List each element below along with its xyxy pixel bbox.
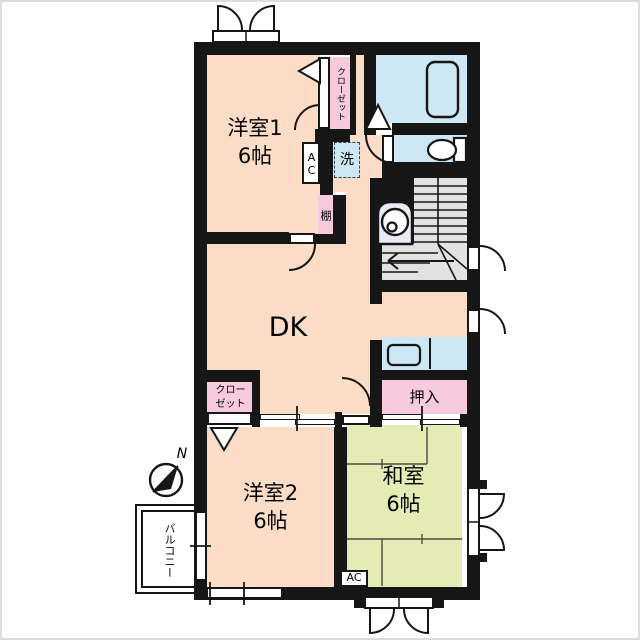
room-label-western2: 洋室2 6帖 (207, 479, 334, 536)
wall-segment (207, 232, 289, 244)
window-frame-south (364, 596, 434, 609)
wall-segment (334, 427, 347, 587)
ac-label-western1: AC (302, 146, 320, 182)
laundry-label: 洗 (334, 142, 360, 178)
wall-segment (333, 195, 346, 244)
floor-plan: 洋室1 6帖 DK 洋室2 6帖 和室 6帖 クローゼット 棚 洗 AC クロー… (0, 0, 640, 640)
room-label-japanese: 和室 6帖 (347, 462, 460, 519)
toilet-floor (394, 135, 467, 162)
kitchen-counter (382, 337, 467, 370)
entrance-door-panel-1 (467, 246, 480, 271)
window-western2-south (207, 588, 282, 598)
closet2-label: クロー ゼット (207, 384, 254, 412)
wall-segment (434, 600, 444, 608)
closet1-door-panel (318, 57, 330, 129)
corridor-top-floor (356, 55, 364, 135)
closet1-label: クローゼット (330, 59, 350, 129)
wall-segment (382, 162, 480, 178)
wall-segment (370, 292, 382, 304)
wall-segment (370, 178, 382, 282)
room-label-dk: DK (257, 312, 319, 343)
wall-segment (364, 55, 376, 135)
western1-dk-door-panel (289, 233, 315, 244)
wall-segment (480, 553, 487, 562)
wall-segment (392, 123, 480, 135)
shelf-label: 棚 (318, 200, 333, 230)
dk-opening-floor (370, 304, 382, 340)
wall-segment (467, 334, 480, 487)
window-frame-east (467, 487, 480, 557)
room-label-western1: 洋室1 6帖 (199, 114, 311, 171)
stairs-lower-floor (382, 244, 467, 280)
wall-segment (320, 129, 333, 195)
wall-segment (467, 42, 480, 246)
wall-segment (350, 55, 356, 135)
ac-label-japanese: AC (340, 570, 368, 587)
entrance-door-panel-2 (467, 309, 480, 334)
sliding-door-dk-western2 (295, 419, 335, 425)
wall-segment (460, 414, 467, 427)
oshiire-label: 押入 (382, 380, 467, 414)
north-label: N (172, 446, 192, 462)
wall-segment (370, 280, 480, 292)
wall-segment (370, 370, 480, 380)
stairs-upper-floor (414, 178, 467, 244)
wall-segment (194, 42, 480, 55)
balcony-label: バルコニー (157, 514, 181, 586)
wall-segment (335, 412, 342, 427)
wall-segment (207, 370, 254, 382)
sliding-door-oshiire (420, 419, 460, 425)
kitchen-room-floor (382, 292, 467, 337)
window-frame-north (212, 30, 280, 43)
compass-icon (150, 464, 182, 496)
wall-segment (382, 178, 414, 244)
window-western2-balcony (196, 512, 206, 580)
dk-japanese-door-panel (342, 415, 370, 425)
wall-segment (480, 480, 487, 489)
wall-segment (370, 380, 382, 427)
toilet-door-panel (382, 135, 394, 163)
bathroom-floor (376, 55, 467, 123)
sliding-door-dk-western2 (260, 414, 300, 420)
wall-segment (354, 600, 364, 608)
sliding-door-oshiire (382, 414, 422, 420)
closet2-door-panel (207, 412, 252, 425)
wall-segment (315, 234, 333, 244)
